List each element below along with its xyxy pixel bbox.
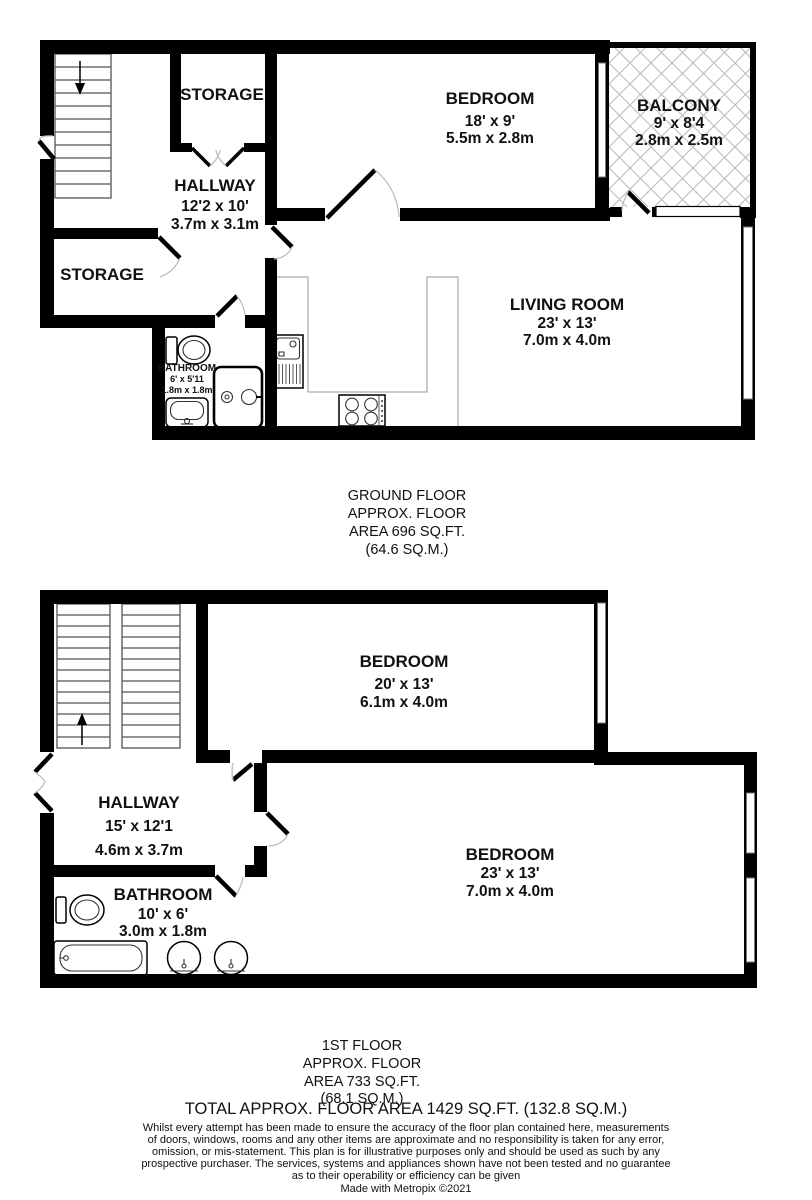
total-area-text: TOTAL APPROX. FLOOR AREA 1429 SQ.FT. (13… bbox=[185, 1100, 628, 1118]
bedroom-rear-door-leaf bbox=[233, 764, 252, 780]
gf-caption-line1: GROUND FLOOR bbox=[348, 488, 466, 504]
bedroom-front-door-leaf bbox=[267, 813, 288, 834]
disclaimer-line: prospective purchaser. The services, sys… bbox=[141, 1158, 670, 1170]
label-gf-hallway-metric: 3.7m x 3.1m bbox=[171, 216, 259, 233]
storage-door-leaf bbox=[226, 148, 244, 166]
gf-caption-line4: (64.6 SQ.M.) bbox=[366, 542, 449, 558]
storage-lower-door-arc bbox=[160, 258, 180, 277]
bathroom-door-leaf bbox=[216, 876, 236, 896]
label-living-room-name: LIVING ROOM bbox=[510, 295, 624, 314]
disclaimer-line: Whilst every attempt has been made to en… bbox=[143, 1122, 670, 1134]
floor-plan-page: STORAGE BEDROOM 18' x 9' 5.5m x 2.8m BAL… bbox=[0, 0, 812, 1200]
kitchen-sink-unit bbox=[273, 335, 303, 388]
bathroom-door-arc bbox=[236, 877, 243, 896]
landing-door-leaf bbox=[35, 793, 52, 811]
label-gf-hallway-name: HALLWAY bbox=[174, 176, 256, 195]
bedroom-door-arc bbox=[375, 170, 399, 217]
label-ff-bedroom-front-imperial: 23' x 13' bbox=[480, 865, 539, 882]
label-balcony-name: BALCONY bbox=[637, 96, 722, 115]
stair-flight bbox=[55, 54, 111, 198]
label-living-room-imperial: 23' x 13' bbox=[537, 315, 596, 332]
ground-floor-caption: GROUND FLOOR APPROX. FLOOR AREA 696 SQ.F… bbox=[348, 488, 466, 558]
landing-door-leaf bbox=[35, 754, 52, 772]
label-ff-hallway-imperial: 15' x 12'1 bbox=[105, 818, 173, 835]
living-room-door-leaf bbox=[272, 227, 292, 247]
ground-doors bbox=[39, 136, 649, 316]
label-gf-bathroom-metric: 1.8m x 1.8m bbox=[161, 385, 212, 395]
label-gf-bedroom-name: BEDROOM bbox=[446, 89, 535, 108]
disclaimer-line: as to their operability or efficiency ca… bbox=[292, 1170, 520, 1182]
label-gf-bedroom-metric: 5.5m x 2.8m bbox=[446, 130, 534, 147]
label-storage-lower: STORAGE bbox=[60, 265, 144, 284]
gf-caption-line3: AREA 696 SQ.FT. bbox=[349, 524, 465, 540]
bedroom-front-window bbox=[747, 793, 755, 853]
storage-door-leaf bbox=[192, 148, 210, 166]
label-ff-hallway-metric: 4.6m x 3.7m bbox=[95, 842, 183, 859]
label-ff-bedroom-rear-name: BEDROOM bbox=[360, 652, 449, 671]
bathroom-door-arc bbox=[237, 296, 245, 315]
living-room-door-arc bbox=[274, 247, 292, 259]
kitchen-fittings bbox=[273, 277, 458, 426]
ff-caption-line2: APPROX. FLOOR bbox=[303, 1056, 421, 1072]
label-ff-bedroom-rear-imperial: 20' x 13' bbox=[374, 676, 433, 693]
label-ff-bedroom-rear-metric: 6.1m x 4.0m bbox=[360, 694, 448, 711]
bedroom-front-door-arc bbox=[269, 834, 288, 846]
credit-text: Made with Metropix ©2021 bbox=[340, 1183, 471, 1195]
bedroom-door-leaf bbox=[327, 170, 375, 218]
label-ff-bathroom-imperial: 10' x 6' bbox=[138, 906, 188, 923]
ff-caption-line3: AREA 733 SQ.FT. bbox=[304, 1074, 420, 1090]
disclaimer-line: omission, or mis-statement. This plan is… bbox=[152, 1146, 660, 1158]
stove-knob bbox=[381, 410, 383, 412]
bedroom-rear-door-arc bbox=[232, 763, 233, 780]
label-storage-top: STORAGE bbox=[180, 85, 264, 104]
gf-caption-line2: APPROX. FLOOR bbox=[348, 506, 466, 522]
front-door-leaf bbox=[39, 141, 54, 159]
label-ff-bathroom-name: BATHROOM bbox=[114, 885, 213, 904]
ground-floor-plan: STORAGE BEDROOM 18' x 9' 5.5m x 2.8m BAL… bbox=[39, 40, 756, 558]
stove-knob bbox=[381, 420, 383, 422]
first-staircase bbox=[57, 604, 180, 748]
label-ff-bathroom-metric: 3.0m x 1.8m bbox=[119, 923, 207, 940]
basin bbox=[215, 942, 248, 975]
living-room-window bbox=[744, 227, 753, 399]
label-gf-bedroom-imperial: 18' x 9' bbox=[465, 113, 515, 130]
bedroom-front-window bbox=[747, 878, 755, 962]
toilet-cistern bbox=[56, 897, 66, 923]
landing-door-arc bbox=[35, 772, 45, 782]
disclaimer-line: of doors, windows, rooms and any other i… bbox=[148, 1134, 665, 1146]
basin bbox=[168, 942, 201, 975]
label-gf-bathroom-imperial: 6' x 5'11 bbox=[170, 374, 204, 384]
label-ff-hallway-name: HALLWAY bbox=[98, 793, 180, 812]
ground-staircase bbox=[55, 54, 111, 198]
bedroom-balcony-window bbox=[599, 63, 606, 177]
bedroom-rear-window bbox=[598, 603, 606, 723]
first-floor-plan: BEDROOM 20' x 13' 6.1m x 4.0m HALLWAY 15… bbox=[35, 590, 757, 1107]
label-ff-bedroom-front-name: BEDROOM bbox=[466, 845, 555, 864]
footer-text: TOTAL APPROX. FLOOR AREA 1429 SQ.FT. (13… bbox=[141, 1100, 670, 1195]
floor-plan-svg: STORAGE BEDROOM 18' x 9' 5.5m x 2.8m BAL… bbox=[0, 0, 812, 1200]
stove-knob bbox=[381, 400, 383, 402]
label-living-room-metric: 7.0m x 4.0m bbox=[523, 332, 611, 349]
label-balcony-imperial: 9' x 8'4 bbox=[654, 115, 705, 132]
toilet-cistern bbox=[166, 337, 177, 364]
label-gf-bathroom-name: BATHROOM bbox=[158, 363, 216, 374]
ff-caption-line1: 1ST FLOOR bbox=[322, 1038, 402, 1054]
label-gf-hallway-imperial: 12'2 x 10' bbox=[181, 198, 249, 215]
stove-knob bbox=[381, 405, 383, 407]
stove-knob bbox=[381, 415, 383, 417]
basin bbox=[166, 398, 208, 427]
first-floor-caption: 1ST FLOOR APPROX. FLOOR AREA 733 SQ.FT. … bbox=[303, 1038, 421, 1107]
landing-door-arc bbox=[35, 782, 45, 793]
balcony-window bbox=[656, 207, 740, 217]
label-balcony-metric: 2.8m x 2.5m bbox=[635, 132, 723, 149]
label-ff-bedroom-front-metric: 7.0m x 4.0m bbox=[466, 883, 554, 900]
kitchen-drainer bbox=[279, 364, 300, 384]
storage-lower-door-leaf bbox=[159, 237, 180, 258]
bathroom-door-leaf bbox=[217, 296, 237, 316]
